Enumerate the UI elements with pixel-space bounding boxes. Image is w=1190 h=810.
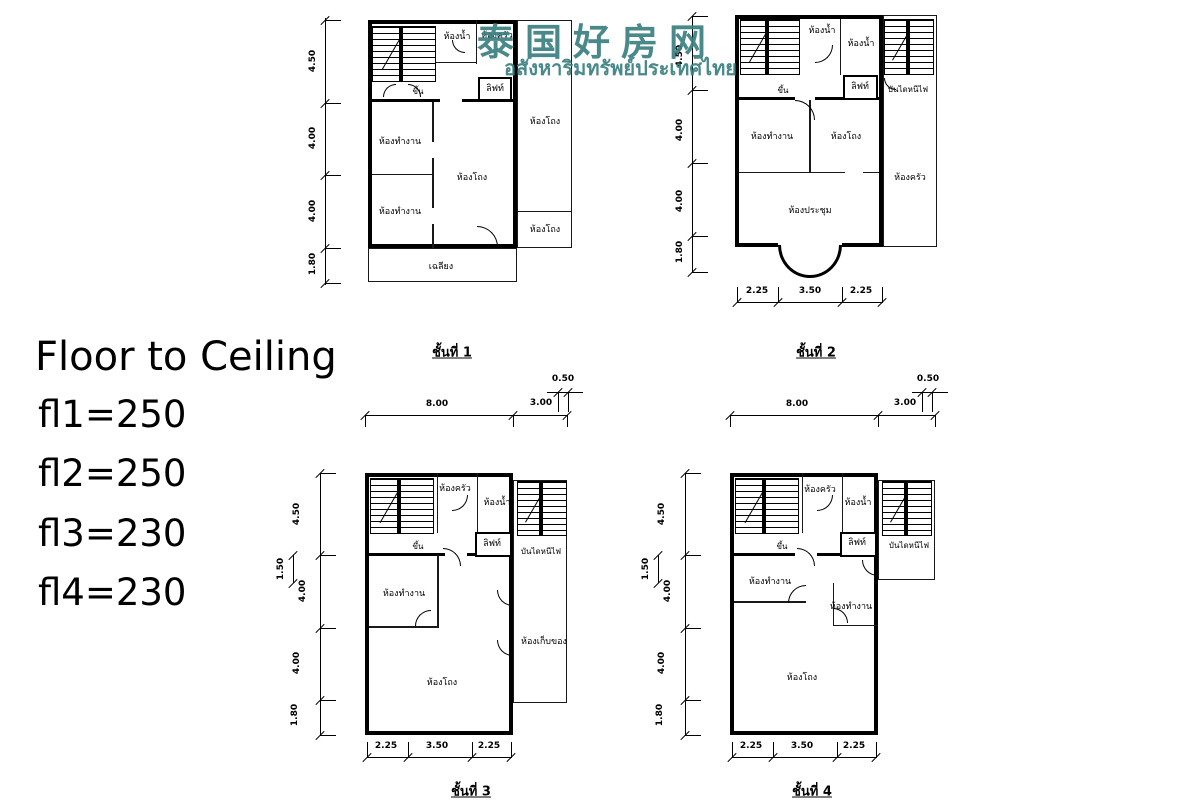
note-line: fl4=230 bbox=[38, 571, 186, 614]
room-label-bathroom: ห้องน้ำ bbox=[484, 498, 511, 508]
plan-caption: ชั้นที่ 2 bbox=[796, 342, 836, 363]
dim-label: 8.00 bbox=[786, 399, 808, 409]
room-label-lift: ลิฟท์ bbox=[483, 539, 501, 549]
room-label-bathroom: ห้องน้ำ bbox=[444, 32, 471, 42]
room-label-hall: ห้องโถง bbox=[530, 117, 560, 127]
room-label-office: ห้องทำงาน bbox=[383, 589, 425, 599]
room-label-office: ห้องทำงาน bbox=[379, 137, 421, 147]
dim-label: 1.80 bbox=[290, 704, 300, 726]
room-label-fire-escape: บันไดหนีไฟ bbox=[521, 547, 561, 557]
note-line: fl1=250 bbox=[38, 393, 186, 436]
room-label-lift: ลิฟท์ bbox=[848, 538, 866, 548]
dim-label: 4.00 bbox=[292, 652, 302, 674]
stair-up-label: ขึ้น bbox=[413, 542, 424, 552]
stairs bbox=[735, 478, 799, 534]
dim-label: 4.50 bbox=[308, 50, 318, 72]
room-label-fire-escape: บันไดหนีไฟ bbox=[888, 85, 928, 95]
dimension-line bbox=[325, 18, 326, 285]
dim-label: 4.00 bbox=[675, 119, 685, 141]
room-label-lift: ลิฟท์ bbox=[851, 82, 869, 92]
dim-label: 2.25 bbox=[746, 286, 768, 296]
stair-up-label: ขึ้น bbox=[777, 542, 788, 552]
dim-label: 3.00 bbox=[894, 398, 916, 408]
room-label-lift: ลิฟท์ bbox=[486, 84, 504, 94]
dim-label: 1.50 bbox=[641, 558, 651, 580]
dim-label: 2.25 bbox=[478, 741, 500, 751]
dim-label: 2.25 bbox=[375, 741, 397, 751]
dim-label: 3.50 bbox=[791, 741, 813, 751]
dim-label: 4.00 bbox=[308, 127, 318, 149]
dim-label: 4.00 bbox=[308, 200, 318, 222]
room-label-hall: ห้องโถง bbox=[530, 225, 560, 235]
dim-label: 0.50 bbox=[552, 374, 574, 384]
room-label-meeting-room: ห้องประชุม bbox=[788, 206, 831, 216]
dim-label: 4.00 bbox=[663, 580, 673, 602]
room-label-hall: ห้องโถง bbox=[427, 678, 457, 688]
note-line: fl3=230 bbox=[38, 512, 186, 555]
dim-label: 1.80 bbox=[675, 241, 685, 263]
floor-plan-sheet: Floor to Ceiling fl1=250 fl2=250 fl3=230… bbox=[0, 0, 1190, 810]
dim-label: 4.00 bbox=[298, 580, 308, 602]
room-label-office: ห้องทำงาน bbox=[749, 577, 791, 587]
note-title: Floor to Ceiling bbox=[35, 334, 337, 380]
room-label-fire-escape: บันไดหนีไฟ bbox=[889, 541, 929, 551]
room-label-porch: เฉลียง bbox=[429, 262, 453, 272]
dim-label: 4.00 bbox=[657, 652, 667, 674]
room-label-kitchen: ห้องครัว bbox=[439, 484, 471, 494]
porch-bay bbox=[778, 245, 842, 278]
room-label-office: ห้องทำงาน bbox=[830, 602, 872, 612]
room-label-bathroom: ห้องน้ำ bbox=[848, 39, 875, 49]
plan-caption: ชั้นที่ 1 bbox=[432, 342, 472, 363]
watermark-subtitle: อสังหาริมทรัพย์ประเทศไทย bbox=[504, 52, 737, 84]
dim-label: 4.50 bbox=[657, 503, 667, 525]
stairs bbox=[370, 478, 434, 534]
dim-label: 8.00 bbox=[426, 399, 448, 409]
dim-label: 3.00 bbox=[530, 398, 552, 408]
plan-caption: ชั้นที่ 4 bbox=[792, 781, 832, 802]
dim-label: 1.80 bbox=[655, 704, 665, 726]
room-label-hall: ห้องโถง bbox=[457, 173, 487, 183]
plan-caption: ชั้นที่ 3 bbox=[451, 781, 491, 802]
room-label-office: ห้องทำงาน bbox=[751, 132, 793, 142]
dim-label: 2.25 bbox=[850, 286, 872, 296]
dim-label: 1.50 bbox=[276, 558, 286, 580]
dim-label: 2.25 bbox=[740, 741, 762, 751]
room-label-hall: ห้องโถง bbox=[787, 673, 817, 683]
room-label-bathroom: ห้องน้ำ bbox=[845, 498, 872, 508]
stair-up-label: ขึ้น bbox=[413, 87, 424, 97]
room-label-office: ห้องทำงาน bbox=[379, 207, 421, 217]
dim-label: 0.50 bbox=[917, 374, 939, 384]
dim-label: 3.50 bbox=[799, 286, 821, 296]
dim-label: 4.00 bbox=[675, 190, 685, 212]
room-label-bathroom: ห้องน้ำ bbox=[809, 26, 836, 36]
dim-label: 4.50 bbox=[292, 503, 302, 525]
stairs bbox=[740, 19, 800, 75]
dim-label: 1.80 bbox=[308, 253, 318, 275]
stairs bbox=[372, 26, 436, 82]
note-line: fl2=250 bbox=[38, 452, 186, 495]
room-label-storage: ห้องเก็บของ bbox=[521, 637, 567, 647]
room-label-hall: ห้องโถง bbox=[831, 132, 861, 142]
dim-label: 2.25 bbox=[843, 741, 865, 751]
dim-label: 3.50 bbox=[426, 741, 448, 751]
room-label-kitchen: ห้องครัว bbox=[894, 173, 926, 183]
stair-up-label: ขึ้น bbox=[778, 86, 789, 96]
room-label-kitchen: ห้องครัว bbox=[804, 485, 836, 495]
